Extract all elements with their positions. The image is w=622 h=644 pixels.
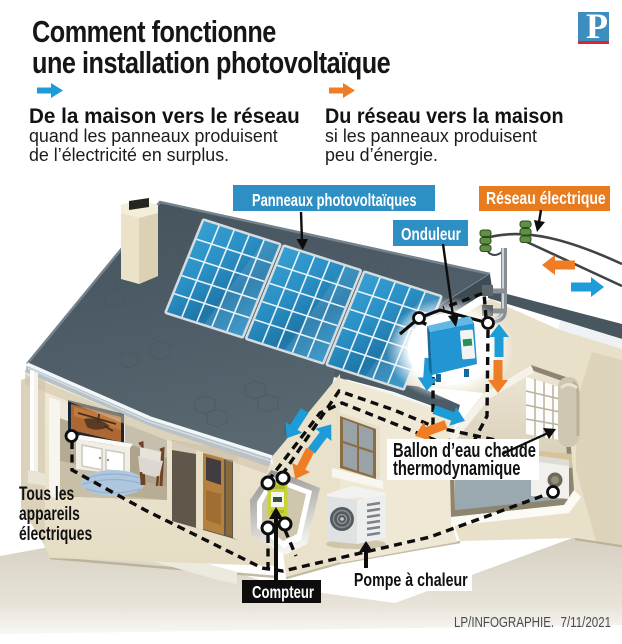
svg-text:Pompe à chaleur: Pompe à chaleur: [354, 570, 468, 590]
svg-text:thermodynamique: thermodynamique: [393, 457, 521, 480]
svg-text:Panneaux photovoltaïques: Panneaux photovoltaïques: [252, 191, 417, 210]
svg-text:Tous les: Tous les: [19, 483, 74, 505]
svg-text:électriques: électriques: [19, 523, 92, 545]
svg-text:Onduleur: Onduleur: [401, 225, 461, 244]
svg-text:Réseau électrique: Réseau électrique: [486, 190, 606, 209]
svg-text:Compteur: Compteur: [252, 583, 314, 602]
svg-text:appareils: appareils: [19, 503, 80, 525]
